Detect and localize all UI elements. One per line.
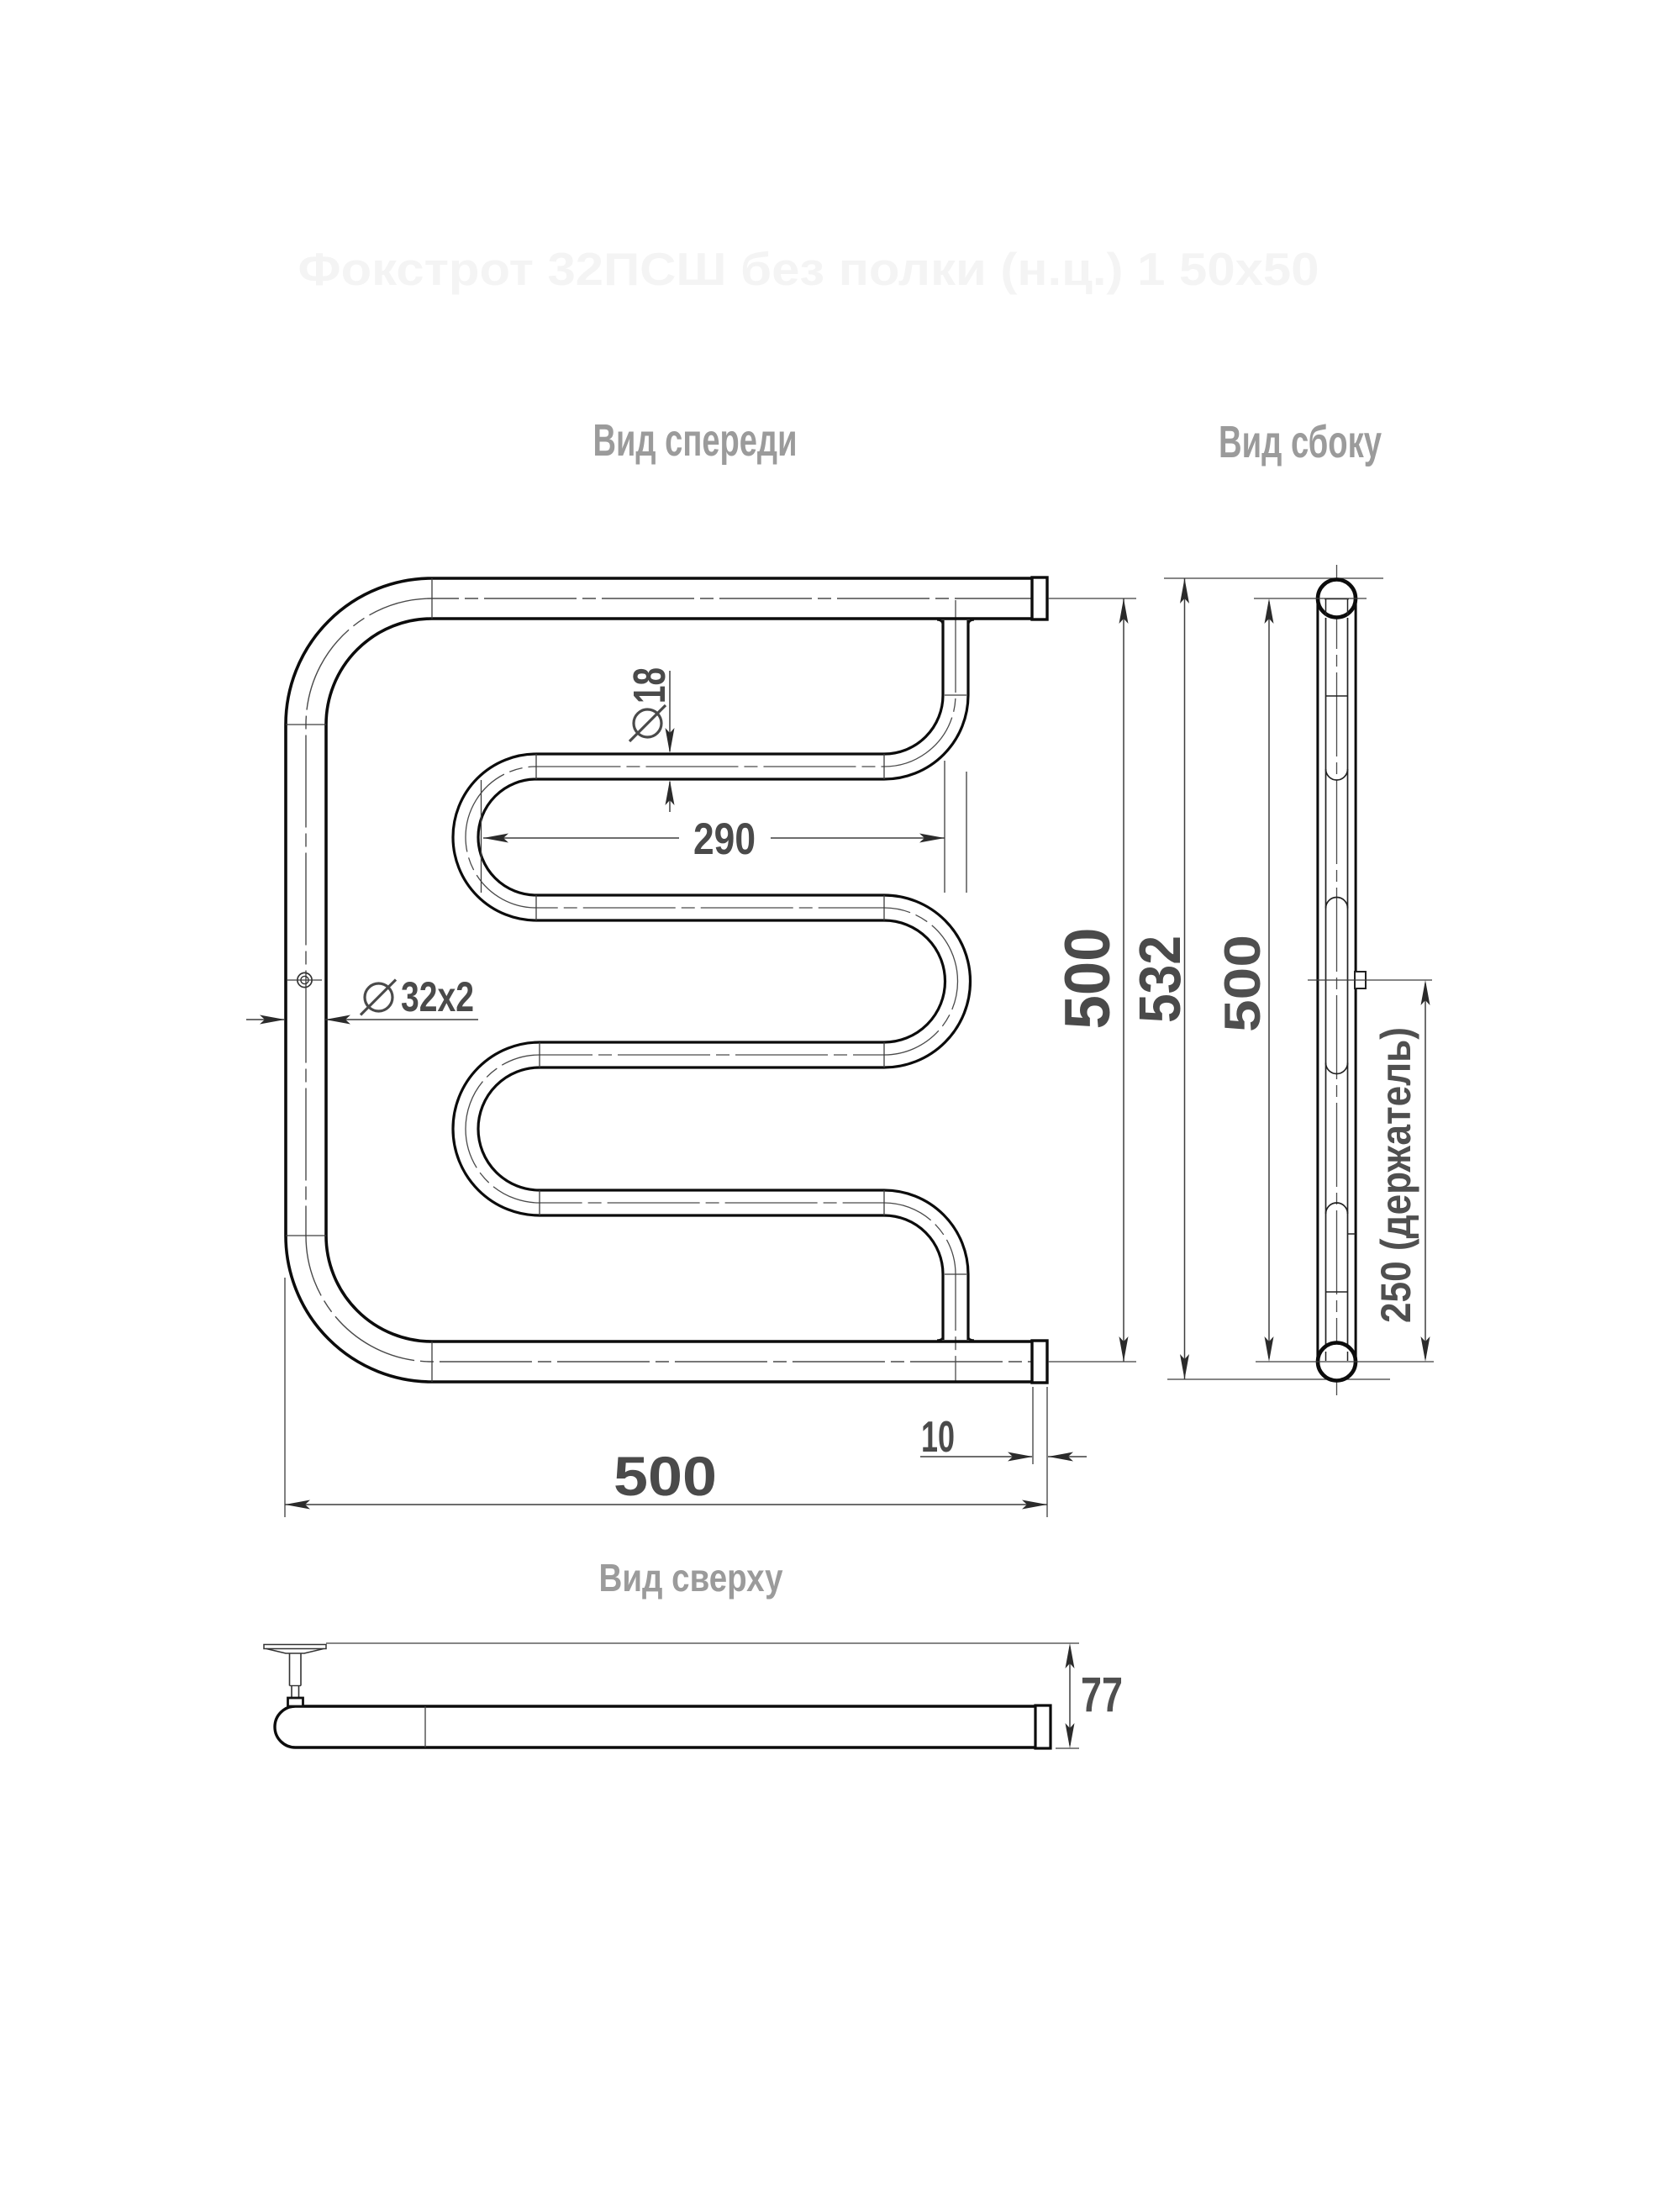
svg-text:77: 77 [1081, 1668, 1123, 1722]
svg-text:500: 500 [1052, 928, 1124, 1030]
svg-text:250 (держатель): 250 (держатель) [1372, 1027, 1419, 1323]
svg-text:18: 18 [624, 667, 675, 704]
svg-text:290: 290 [693, 814, 756, 864]
svg-text:32x2: 32x2 [401, 973, 474, 1020]
svg-text:Вид сверху: Вид сверху [599, 1556, 783, 1600]
svg-text:500: 500 [1214, 935, 1271, 1032]
svg-text:500: 500 [614, 1445, 717, 1507]
svg-text:10: 10 [921, 1413, 955, 1462]
svg-text:Вид сбоку: Вид сбоку [1219, 417, 1382, 467]
svg-text:Фокстрот 32ПСШ без полки (н.ц.: Фокстрот 32ПСШ без полки (н.ц.) 1 50х50 [298, 243, 1319, 295]
svg-text:Вид спереди: Вид спереди [593, 415, 798, 466]
svg-text:532: 532 [1127, 936, 1193, 1023]
